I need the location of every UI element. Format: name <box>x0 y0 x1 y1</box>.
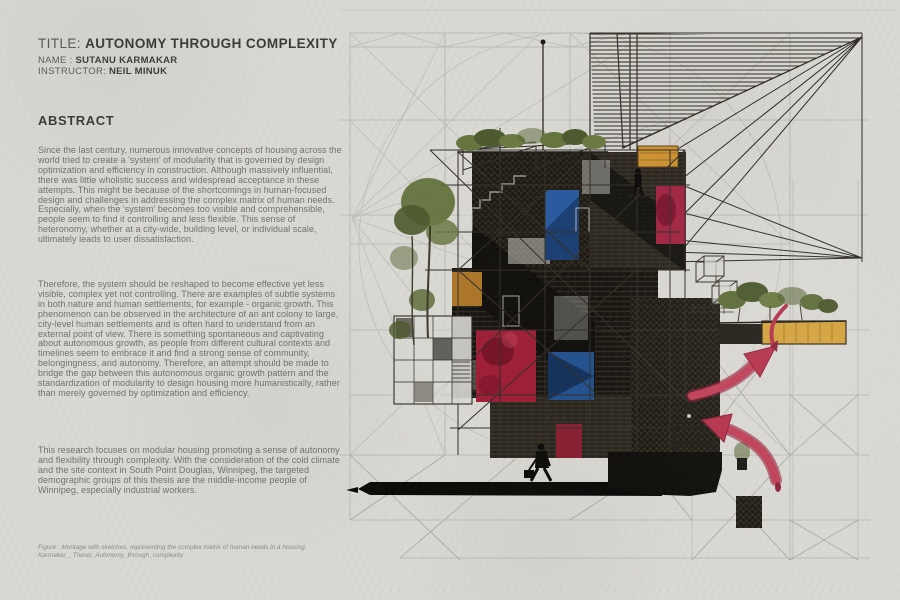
pedestal <box>736 496 762 528</box>
abstract-heading: ABSTRACT <box>38 113 114 128</box>
abstract-paragraph-3: This research focuses on modular housing… <box>38 446 344 496</box>
briefcase <box>524 470 534 478</box>
author-name: SUTANU KARMAKAR <box>75 55 177 66</box>
title-prefix: TITLE: <box>38 36 81 51</box>
roof-garden <box>456 128 608 152</box>
instructor-line: INSTRUCTOR: NEIL MINUK <box>38 66 167 77</box>
figure-caption: Figure : Montage with sketches, represen… <box>38 544 378 560</box>
name-label: NAME : <box>38 55 73 66</box>
page-title: AUTONOMY THROUGH COMPLEXITY <box>85 36 338 51</box>
figure-area <box>340 0 900 600</box>
montage-illustration <box>340 0 900 600</box>
amber-panel <box>452 272 482 306</box>
abstract-paragraph-2: Therefore, the system should be reshaped… <box>38 280 344 399</box>
yellow-balcony-slab <box>718 321 846 344</box>
figure-caption-line2: Karmakar__Thesis_Autonomy_through_comple… <box>38 552 378 560</box>
red-panel-bottom <box>556 424 582 458</box>
abstract-paragraph-1: Since the last century, numerous innovat… <box>38 146 344 245</box>
orange-roof-block <box>638 146 678 167</box>
instructor-label: INSTRUCTOR: <box>38 66 106 77</box>
author-line: NAME : SUTANU KARMAKAR <box>38 55 177 66</box>
instructor-name: NEIL MINUK <box>109 66 167 77</box>
dark-terrace-slab <box>608 452 722 496</box>
title-line: TITLE: AUTONOMY THROUGH COMPLEXITY <box>38 36 338 51</box>
poster-page: TITLE: AUTONOMY THROUGH COMPLEXITY NAME … <box>0 0 900 600</box>
figure-caption-line1: Figure : Montage with sketches, represen… <box>38 544 378 552</box>
